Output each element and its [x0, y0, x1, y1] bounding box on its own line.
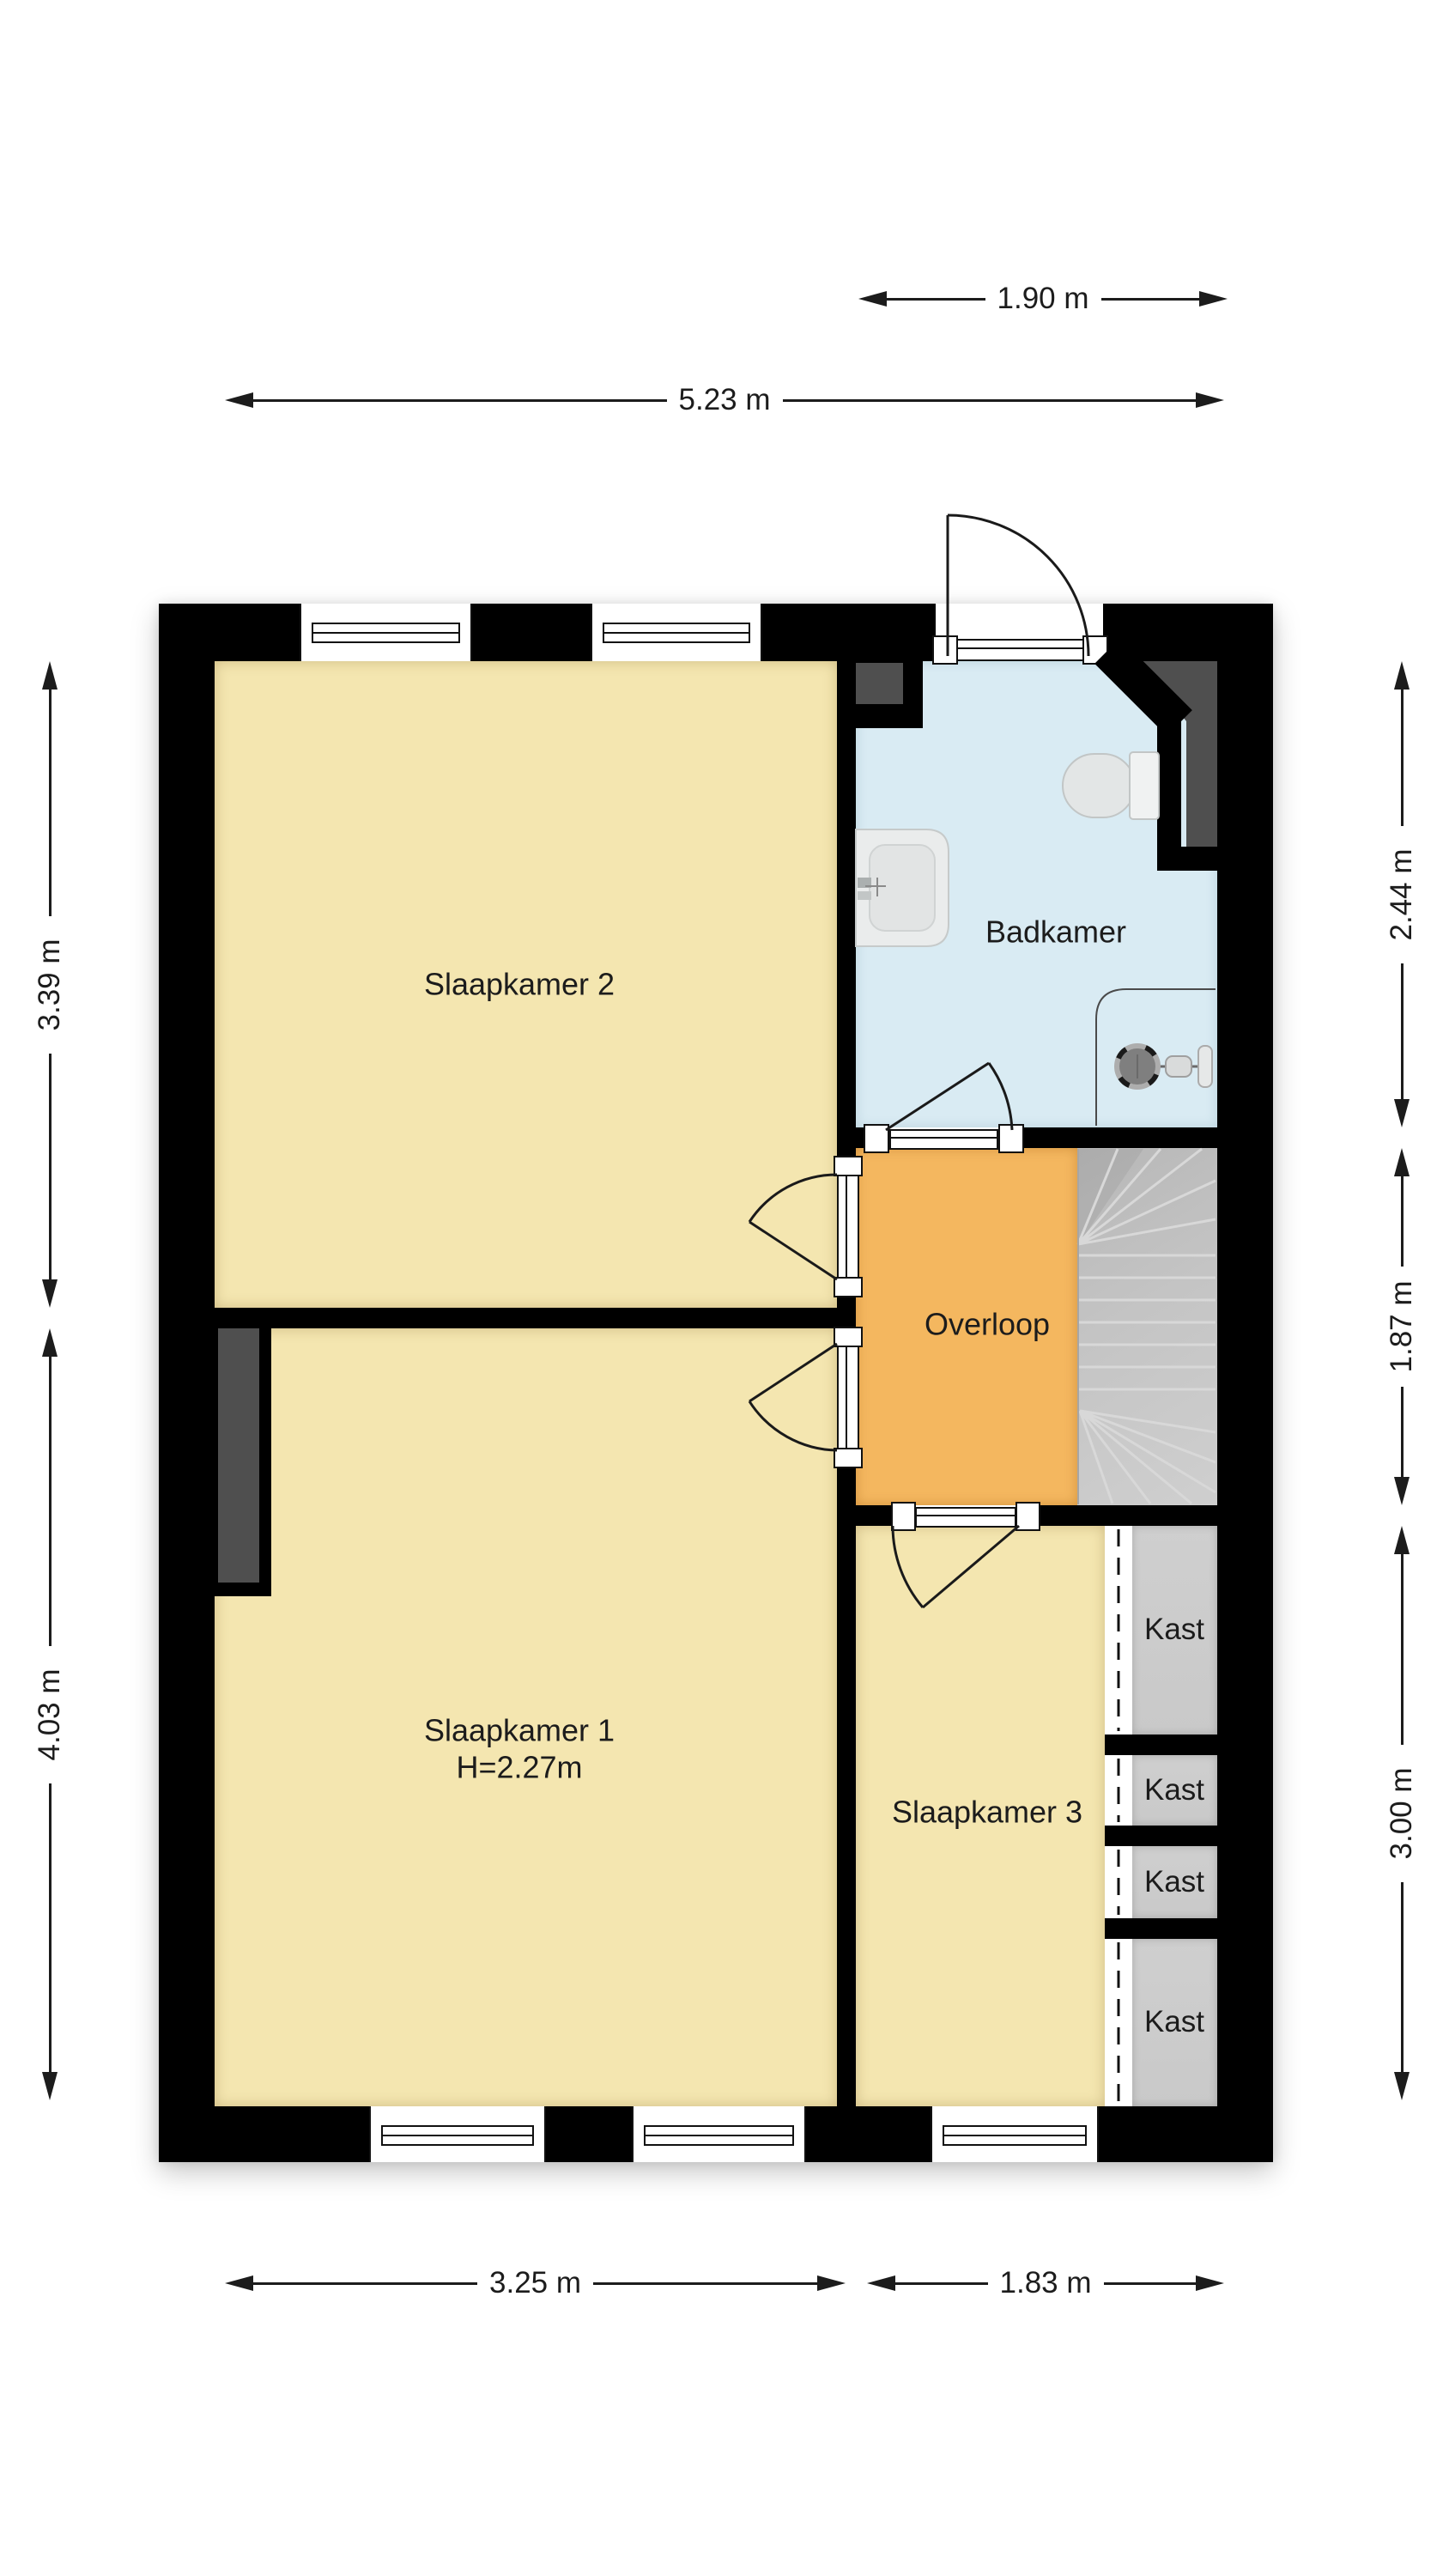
room-label-badkamer: Badkamer [985, 914, 1126, 949]
dimension-bottom-left: 3.25 m [225, 2268, 846, 2299]
door-swing-badkamer-exterior [948, 515, 1088, 656]
room-label-kast-4: Kast [1144, 2005, 1204, 2039]
dimension-right-upper-label: 2.44 m [1385, 848, 1419, 940]
floor-plan-canvas: Slaapkamer 2 Badkamer Overloop Slaapkame… [0, 0, 1449, 2576]
dimension-bottom-right-label: 1.83 m [988, 2266, 1104, 2300]
door-swing-slaapkamer2 [749, 1175, 837, 1279]
dimension-right-lower-label: 3.00 m [1385, 1767, 1419, 1859]
room-label-slaapkamer1-height: H=2.27m [456, 1749, 582, 1784]
room-label-slaapkamer3: Slaapkamer 3 [892, 1794, 1082, 1829]
dimension-top-section: 1.90 m [858, 283, 1228, 314]
dimension-top-total: 5.23 m [225, 385, 1224, 416]
stairs-icon [1078, 1149, 1216, 1504]
dimension-bottom-left-label: 3.25 m [477, 2266, 593, 2300]
room-label-overloop: Overloop [925, 1306, 1050, 1341]
room-label-slaapkamer2: Slaapkamer 2 [424, 966, 615, 1001]
sink-icon [856, 829, 949, 946]
dimension-right-middle-label: 1.87 m [1385, 1281, 1419, 1373]
room-label-kast-2: Kast [1144, 1773, 1204, 1807]
dimension-left-lower-label: 4.03 m [33, 1668, 67, 1760]
dimension-top-section-label: 1.90 m [985, 282, 1101, 316]
room-label-slaapkamer1: Slaapkamer 1 [424, 1712, 615, 1747]
dimension-left-lower: 4.03 m [34, 1328, 65, 2100]
dimension-top-total-label: 5.23 m [667, 383, 783, 417]
dimension-left-upper-label: 3.39 m [33, 939, 67, 1030]
dimension-right-lower: 3.00 m [1386, 1526, 1417, 2100]
room-label-kast-3: Kast [1144, 1865, 1204, 1899]
toilet-icon [1063, 752, 1159, 819]
dimension-bottom-right: 1.83 m [867, 2268, 1224, 2299]
door-swing-slaapkamer3 [893, 1526, 1019, 1607]
room-label-kast-1: Kast [1144, 1613, 1204, 1647]
shower-icon [1096, 989, 1216, 1126]
door-swing-badkamer [886, 1063, 1012, 1130]
dimension-right-middle: 1.87 m [1386, 1148, 1417, 1505]
door-swing-slaapkamer1 [749, 1344, 837, 1450]
dimension-left-upper: 3.39 m [34, 661, 65, 1308]
dimension-right-upper: 2.44 m [1386, 661, 1417, 1127]
